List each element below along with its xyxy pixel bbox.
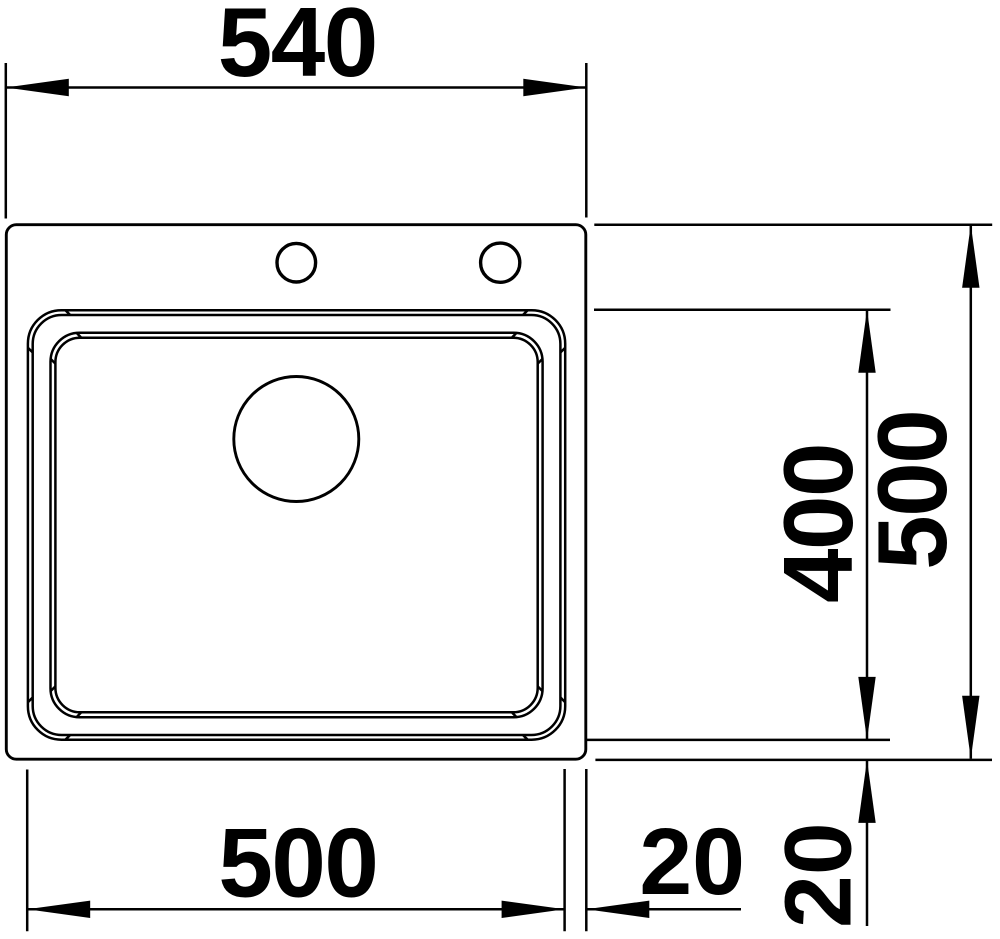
svg-text:500: 500	[218, 808, 377, 918]
svg-text:500: 500	[857, 411, 967, 570]
svg-text:20: 20	[639, 809, 745, 915]
svg-text:540: 540	[218, 0, 377, 97]
svg-text:20: 20	[765, 822, 871, 928]
